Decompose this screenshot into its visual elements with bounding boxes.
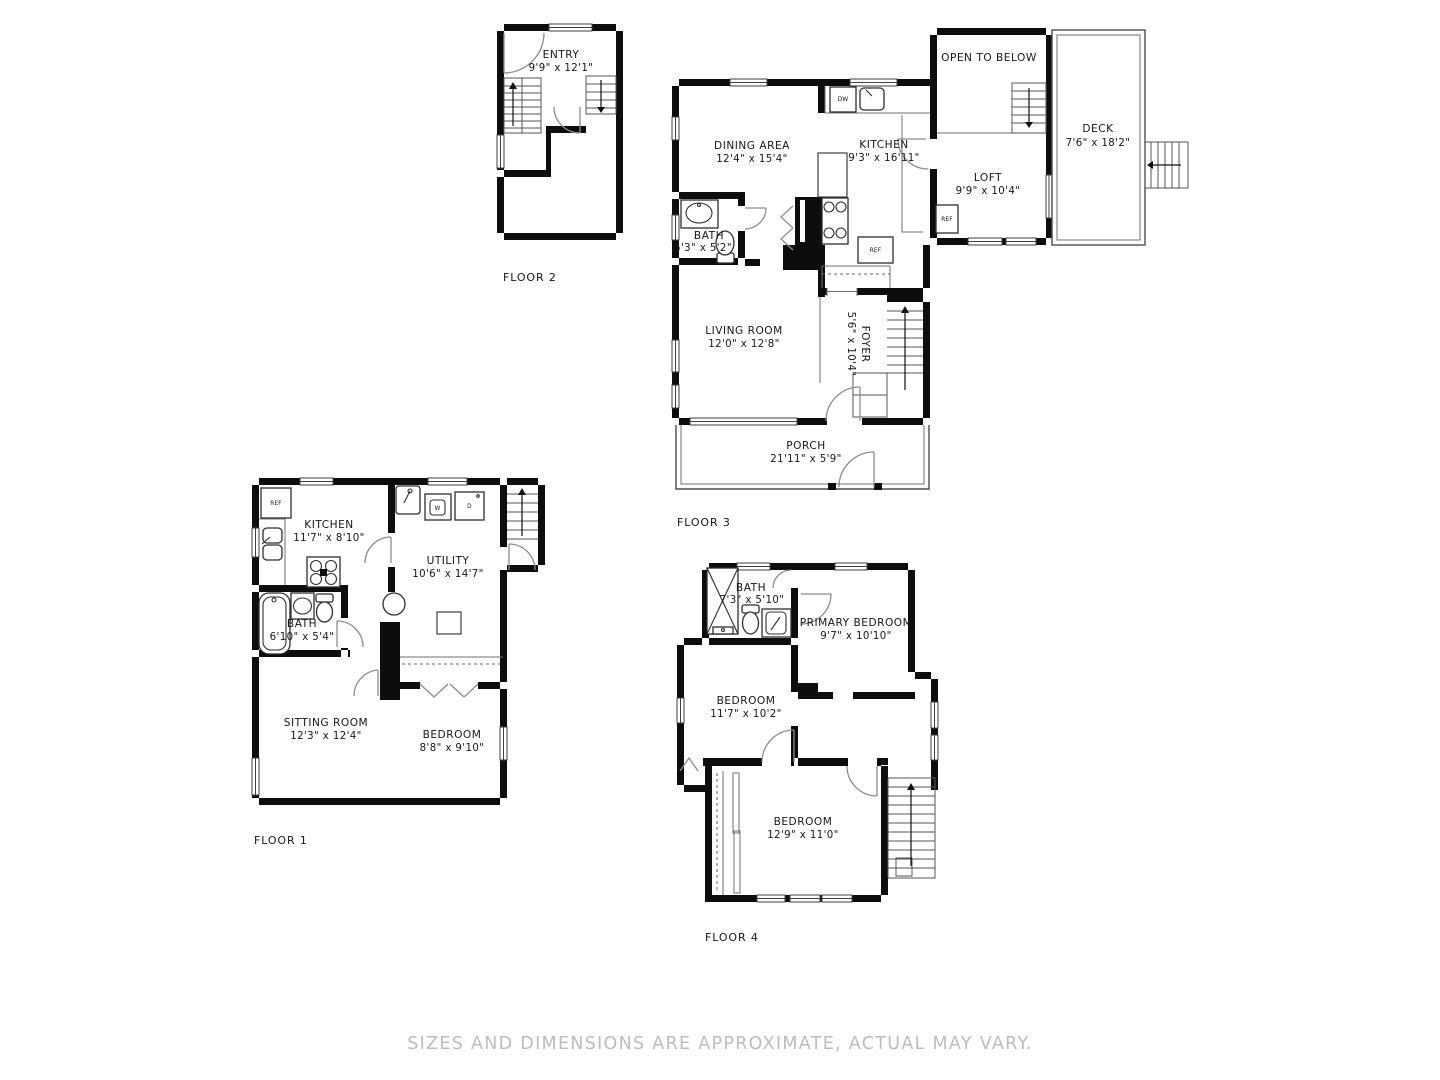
deck-label: DECK: [1082, 123, 1114, 135]
floor4-label: FLOOR 4: [705, 931, 759, 944]
loft-ref-label: REF: [941, 217, 953, 223]
kitchen3-sink: [860, 88, 884, 110]
kitchen1-label: KITCHEN: [304, 519, 353, 531]
bedroom4b-label: BEDROOM: [774, 816, 833, 828]
bath4-toilet: [743, 612, 759, 634]
bath1-dims: 6'10" x 5'4": [270, 632, 335, 643]
floor2-doors: [504, 33, 580, 133]
loft-dims: 9'9" x 10'4": [956, 186, 1021, 197]
sitting-room-label: SITTING ROOM: [284, 717, 368, 729]
floor2-windows: [497, 24, 592, 168]
foyer-dims: 5'6" x 10'4": [845, 312, 856, 377]
dining-area-dims: 12'4" x 15'4": [716, 154, 788, 165]
dw-label: DW: [838, 97, 849, 103]
bedroom1-label: BEDROOM: [423, 729, 482, 741]
disclaimer-text: SIZES AND DIMENSIONS ARE APPROXIMATE, AC…: [407, 1034, 1033, 1054]
bath1-sink: [291, 593, 314, 619]
bath1-toilet: [317, 602, 333, 622]
floor3-plan: DW REF: [672, 28, 1188, 529]
bedroom4b-dims: 12'9" x 11'0": [767, 830, 839, 841]
bath1-toilet-tank: [316, 594, 333, 602]
cased-opening: [827, 287, 857, 296]
kitchen1-dims: 11'7" x 8'10": [293, 533, 365, 544]
floor2-stairs-up: [504, 78, 541, 133]
dryer-label: D: [467, 504, 472, 510]
primary-bedroom-dims: 9'7" x 10'10": [820, 631, 892, 642]
loft-label: LOFT: [974, 172, 1002, 184]
utility-label: UTILITY: [427, 555, 470, 567]
bifold-door-icon: [450, 684, 478, 697]
washer-label: W: [435, 506, 441, 512]
water-heater: [383, 593, 405, 615]
floor2-plan: ENTRY 9'9" x 12'1" FLOOR 2: [497, 24, 623, 284]
dining-area-label: DINING AREA: [714, 140, 790, 152]
floor4-closet: [717, 771, 740, 895]
bath3-dims: 5'3" x 5'2": [674, 243, 732, 254]
floor3-label: FLOOR 3: [677, 516, 731, 529]
floor1-label: FLOOR 1: [254, 834, 308, 847]
living-room-label: LIVING ROOM: [705, 325, 783, 337]
floor1-plan: REF W D: [252, 478, 545, 847]
bath4-dims: 7'3" x 5'10": [720, 595, 785, 606]
ref3-label: REF: [870, 248, 882, 254]
primary-bedroom-label: PRIMARY BEDROOM: [800, 617, 913, 629]
kitchen3-closet: [822, 266, 890, 288]
open-to-below-label: OPEN TO BELOW: [941, 52, 1037, 64]
utility-dims: 10'6" x 14'7": [412, 569, 484, 580]
foyer-label: FOYER: [859, 326, 871, 363]
bifold-door-icon: [781, 206, 793, 228]
kitchen3-label: KITCHEN: [859, 139, 908, 151]
bedroom4a-label: BEDROOM: [717, 695, 776, 707]
bifold-door-icon: [420, 684, 448, 697]
front-door-opening: [827, 417, 862, 426]
bath1-label: BATH: [287, 618, 317, 630]
sitting-room-dims: 12'3" x 12'4": [290, 731, 362, 742]
floor3-walls: [672, 28, 1052, 425]
porch-dims: 21'11" x 5'9": [770, 454, 842, 465]
bedroom1-dims: 8'8" x 9'10": [420, 743, 485, 754]
entry-label: ENTRY: [543, 49, 580, 61]
deck-dims: 7'6" x 18'2": [1066, 138, 1131, 149]
floor3-doors: [745, 139, 928, 487]
floor2-label: FLOOR 2: [503, 271, 557, 284]
furnace: [437, 612, 461, 634]
bedroom4a-dims: 11'7" x 10'2": [710, 709, 782, 720]
entry-dims: 9'9" x 12'1": [529, 63, 594, 74]
bath4-label: BATH: [736, 582, 766, 594]
kitchen1-sink-b: [263, 545, 282, 560]
floor1-closet: [400, 657, 503, 664]
foyer-label-group: FOYER 5'6" x 10'4": [845, 312, 871, 377]
kitchen3-dims: 9'3" x 16'11": [848, 153, 920, 164]
floor-plan-page: ENTRY 9'9" x 12'1" FLOOR 2: [0, 0, 1440, 1080]
ref1-label: REF: [270, 501, 282, 507]
bath3-label: BATH: [694, 230, 724, 242]
porch-label: PORCH: [786, 440, 825, 452]
living-room-dims: 12'0" x 12'8": [708, 339, 780, 350]
floor4-plan: BATH 7'3" x 5'10" PRIMARY BEDROOM 9'7" x…: [677, 563, 938, 944]
floor-plan-drawing: ENTRY 9'9" x 12'1" FLOOR 2: [0, 0, 1440, 1080]
